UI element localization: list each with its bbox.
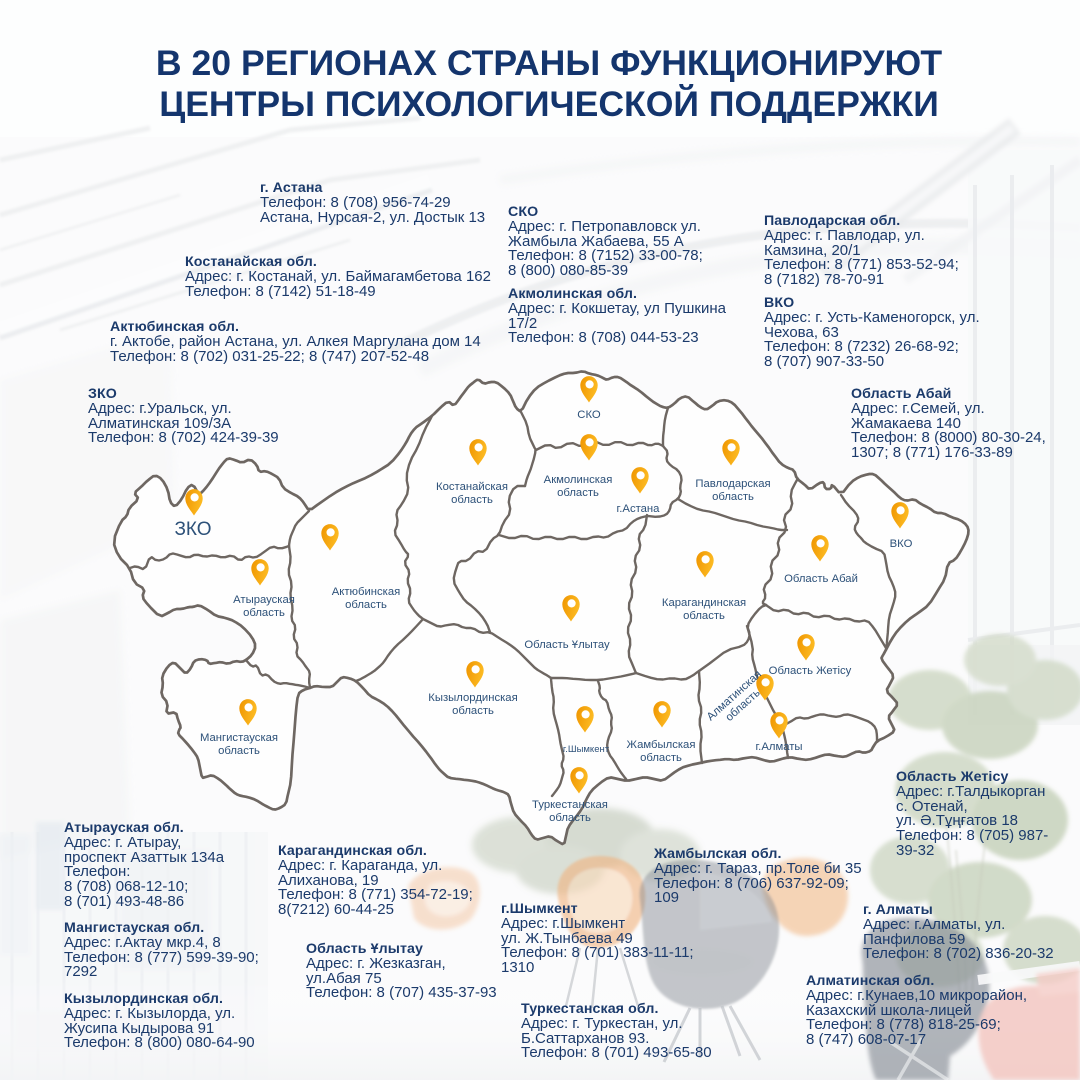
svg-text:ЗКО: ЗКО [174, 519, 211, 540]
svg-text:г.Шымкент: г.Шымкент [563, 744, 610, 755]
svg-text:Кызылординская: Кызылординская [428, 692, 517, 704]
svg-text:Туркестанская: Туркестанская [532, 799, 608, 811]
svg-text:Актюбинская: Актюбинская [332, 586, 401, 598]
svg-text:область: область [451, 494, 493, 506]
svg-text:СКО: СКО [577, 409, 601, 421]
svg-text:область: область [640, 752, 682, 764]
svg-text:Карагандинская: Карагандинская [662, 597, 746, 609]
svg-text:Область Ұлытау: Область Ұлытау [524, 639, 610, 651]
svg-text:Павлодарская: Павлодарская [695, 478, 770, 490]
svg-text:г.Алматы: г.Алматы [755, 741, 802, 753]
svg-text:г.Астана: г.Астана [617, 503, 661, 515]
svg-text:Жамбылская: Жамбылская [627, 739, 696, 751]
svg-text:область: область [683, 610, 725, 622]
svg-text:область: область [452, 705, 494, 717]
svg-text:ВКО: ВКО [890, 538, 913, 550]
svg-text:Мангистауская: Мангистауская [200, 732, 278, 744]
svg-text:область: область [557, 487, 599, 499]
svg-text:область: область [712, 491, 754, 503]
svg-text:область: область [549, 812, 591, 824]
svg-text:область: область [345, 599, 387, 611]
svg-text:Акмолинская: Акмолинская [544, 474, 613, 486]
svg-text:Атырауская: Атырауская [233, 594, 295, 606]
svg-text:Область Жетісу: Область Жетісу [769, 665, 852, 677]
svg-text:область: область [218, 745, 260, 757]
svg-text:область: область [243, 607, 285, 619]
svg-text:Костанайская: Костанайская [436, 481, 508, 493]
svg-text:Область Абай: Область Абай [784, 573, 858, 585]
